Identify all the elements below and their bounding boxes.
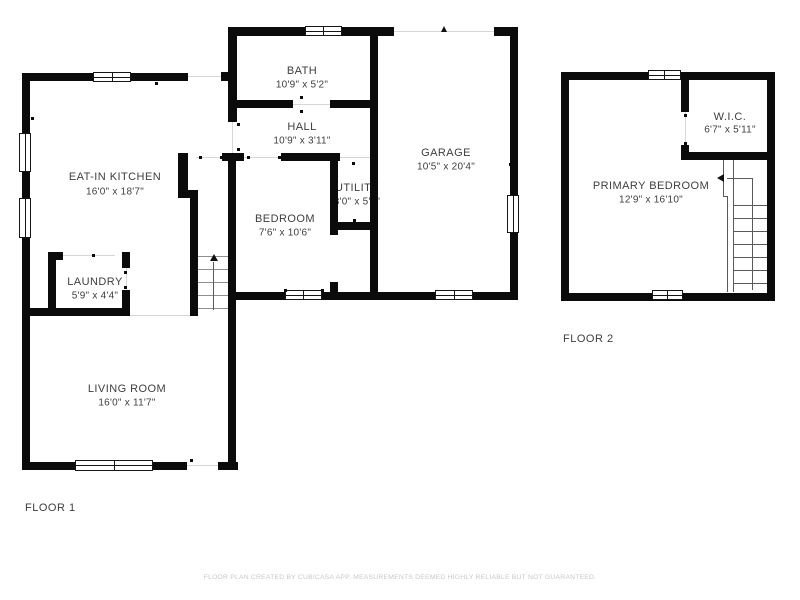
opening-line [340, 157, 370, 158]
wall [681, 152, 775, 160]
door-marker [247, 156, 250, 159]
stair-line [752, 178, 753, 290]
wall [22, 462, 75, 470]
door-marker [31, 117, 34, 120]
window-midline [513, 196, 514, 232]
wall [48, 252, 56, 312]
window-midline [25, 134, 26, 171]
door-marker [768, 101, 771, 104]
door-marker [237, 123, 240, 126]
stair-line [723, 196, 728, 197]
door-marker [92, 254, 95, 257]
room-dimensions-wic: 6'7" x 5'11" [704, 125, 756, 136]
wall [22, 308, 130, 316]
stair-line [727, 178, 752, 179]
room-label-eat-in-kitchen: EAT-IN KITCHEN [69, 171, 161, 183]
room-dimensions-bedroom: 7'6" x 10'6" [259, 228, 311, 239]
stair-line [733, 218, 767, 219]
opening-line [130, 315, 192, 316]
door-marker [684, 142, 687, 145]
window-divider [667, 291, 668, 299]
garage-door-arrow [441, 26, 447, 32]
wall [322, 292, 435, 300]
floor-plan: FLOOR 1 FLOOR 2 FLOOR PLAN CREATED BY CU… [0, 0, 800, 600]
wall [228, 100, 293, 108]
opening-line [293, 104, 330, 105]
window-divider [112, 73, 113, 81]
door-marker [199, 156, 202, 159]
stair-line [733, 270, 767, 271]
door-marker [566, 242, 569, 245]
wall [222, 153, 244, 161]
opening-line [187, 465, 218, 466]
stair-line [213, 262, 214, 310]
room-dimensions-hall: 10'9" x 3'11" [273, 136, 330, 147]
window-midline [25, 199, 26, 237]
door-marker [353, 219, 356, 222]
stair-line [733, 283, 767, 284]
door-marker [27, 388, 30, 391]
door-marker [155, 82, 158, 85]
door-marker [509, 163, 512, 166]
window-divider [664, 71, 665, 79]
room-dimensions-bath: 10'9" x 5'2" [276, 80, 328, 91]
floor-2-label: FLOOR 2 [563, 333, 614, 345]
room-dimensions-eat-in-kitchen: 16'0" x 18'7" [86, 187, 144, 198]
wall [190, 190, 198, 316]
door-marker [278, 156, 281, 159]
door-marker [124, 286, 127, 289]
wall [681, 72, 689, 112]
stairs-up-arrow-floor1 [210, 254, 218, 261]
stair-tread-line [198, 282, 230, 283]
room-label-hall: HALL [287, 121, 316, 133]
stair-line [733, 205, 767, 206]
door-marker [300, 110, 303, 113]
room-dimensions-garage: 10'5" x 20'4" [417, 162, 475, 173]
stair-tread-line [198, 269, 230, 270]
wall [473, 292, 518, 300]
stair-line [727, 197, 728, 292]
wall [561, 72, 569, 301]
room-dimensions-living-room: 16'0" x 11'7" [98, 398, 155, 409]
stair-line [733, 257, 767, 258]
wall [330, 222, 375, 230]
wall [221, 72, 229, 81]
opening-line [62, 255, 115, 256]
window-divider [454, 291, 455, 299]
window-divider [303, 291, 304, 299]
window-divider [323, 27, 324, 35]
room-label-wic: W.I.C. [714, 111, 747, 123]
door-marker [237, 148, 240, 151]
wall [122, 252, 130, 268]
floor-1-label: FLOOR 1 [25, 502, 76, 514]
stair-tread-line [198, 308, 230, 309]
wall [767, 72, 775, 301]
door-marker [233, 64, 236, 67]
opening-line [232, 122, 233, 153]
stairs-down-arrow-floor2 [717, 174, 724, 182]
wall [228, 292, 285, 300]
stair-line [733, 244, 767, 245]
wall [330, 100, 375, 108]
door-marker [300, 96, 303, 99]
door-marker [190, 459, 193, 462]
room-label-living-room: LIVING ROOM [88, 383, 166, 395]
door-marker [232, 388, 235, 391]
room-dimensions-primary-bedroom: 12'9" x 16'10" [619, 195, 683, 206]
stair-tread-line [198, 295, 230, 296]
wall [330, 282, 338, 292]
room-label-garage: GARAGE [421, 147, 471, 159]
room-dimensions-laundry: 5'9" x 4'4" [72, 291, 118, 302]
door-marker [352, 162, 355, 165]
wall [122, 290, 130, 316]
door-marker [321, 289, 324, 292]
wall [281, 153, 340, 161]
room-label-bath: BATH [287, 65, 317, 77]
stair-line [733, 231, 767, 232]
door-marker [220, 156, 223, 159]
wall [153, 462, 187, 470]
door-marker [124, 271, 127, 274]
footer-disclaimer: FLOOR PLAN CREATED BY CUBICASA APP. MEAS… [128, 574, 672, 581]
room-label-bedroom: BEDROOM [255, 213, 315, 225]
wall [228, 153, 236, 470]
wall [370, 27, 378, 298]
window-divider [114, 461, 115, 470]
room-label-laundry: LAUNDRY [67, 276, 123, 288]
door-marker [284, 289, 287, 292]
door-marker [684, 114, 687, 117]
room-label-primary-bedroom: PRIMARY BEDROOM [593, 180, 709, 192]
